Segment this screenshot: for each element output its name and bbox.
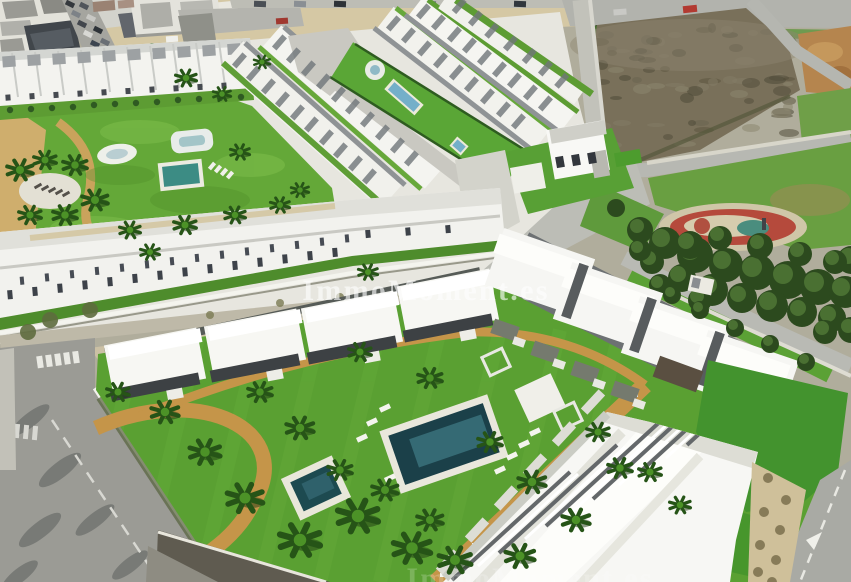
svg-text:ImmoMoment.es: ImmoMoment.es	[302, 274, 549, 307]
svg-text:ImmoMoment.es: ImmoMoment.es	[406, 562, 653, 582]
